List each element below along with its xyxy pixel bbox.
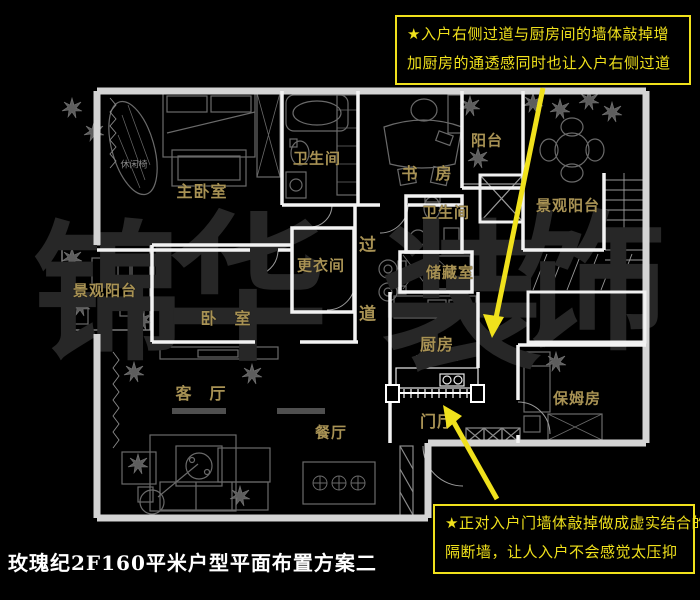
room-label-corridor-2: 道 [359, 300, 377, 325]
callout-bottom-right: ★正对入户门墙体敲掉做成虚实结合的 隔断墙，让人入户不会感觉太压抑 [433, 504, 695, 574]
room-label-balcony-top: 阳台 [471, 130, 503, 151]
callout-top-line-2: 加厨房的通透感同时也让入户右侧过道 [407, 49, 679, 78]
floorplan-page: 锦 华 装 饰 [0, 0, 700, 600]
room-label-leisure-chair: 休闲椅 [120, 158, 147, 171]
room-label-foyer: 门厅 [420, 408, 454, 432]
room-label-dining-room: 餐厅 [315, 422, 347, 443]
room-label-scenic-balcony-left: 景观阳台 [73, 280, 137, 301]
room-label-living-room: 客 厅 [175, 380, 226, 404]
room-label-bathroom-2: 卫生间 [422, 202, 470, 223]
room-label-kitchen: 厨房 [420, 331, 454, 355]
room-label-nanny-room: 保姆房 [553, 388, 601, 409]
room-label-bedroom-2: 卧 室 [200, 305, 251, 329]
callout-bottom-line-2: 隔断墙，让人入户不会感觉太压抑 [445, 538, 683, 567]
callout-bottom-line-1: ★正对入户门墙体敲掉做成虚实结合的 [445, 509, 683, 538]
room-label-master-bedroom: 主卧室 [176, 178, 227, 202]
room-label-corridor-1: 过 [359, 231, 377, 256]
room-label-study: 书 房 [401, 160, 452, 184]
page-title: 玫瑰纪2F160平米户型平面布置方案二 [8, 547, 377, 576]
room-label-storage: 储藏室 [426, 262, 474, 283]
room-label-bathroom-1: 卫生间 [293, 148, 341, 169]
callout-top-right: ★入户右侧过道与厨房间的墙体敲掉增 加厨房的通透感同时也让入户右侧过道 [395, 15, 691, 85]
callout-top-line-1: ★入户右侧过道与厨房间的墙体敲掉增 [407, 20, 679, 49]
room-label-scenic-balcony-right: 景观阳台 [536, 195, 600, 216]
room-label-dressing-room: 更衣间 [297, 255, 345, 276]
